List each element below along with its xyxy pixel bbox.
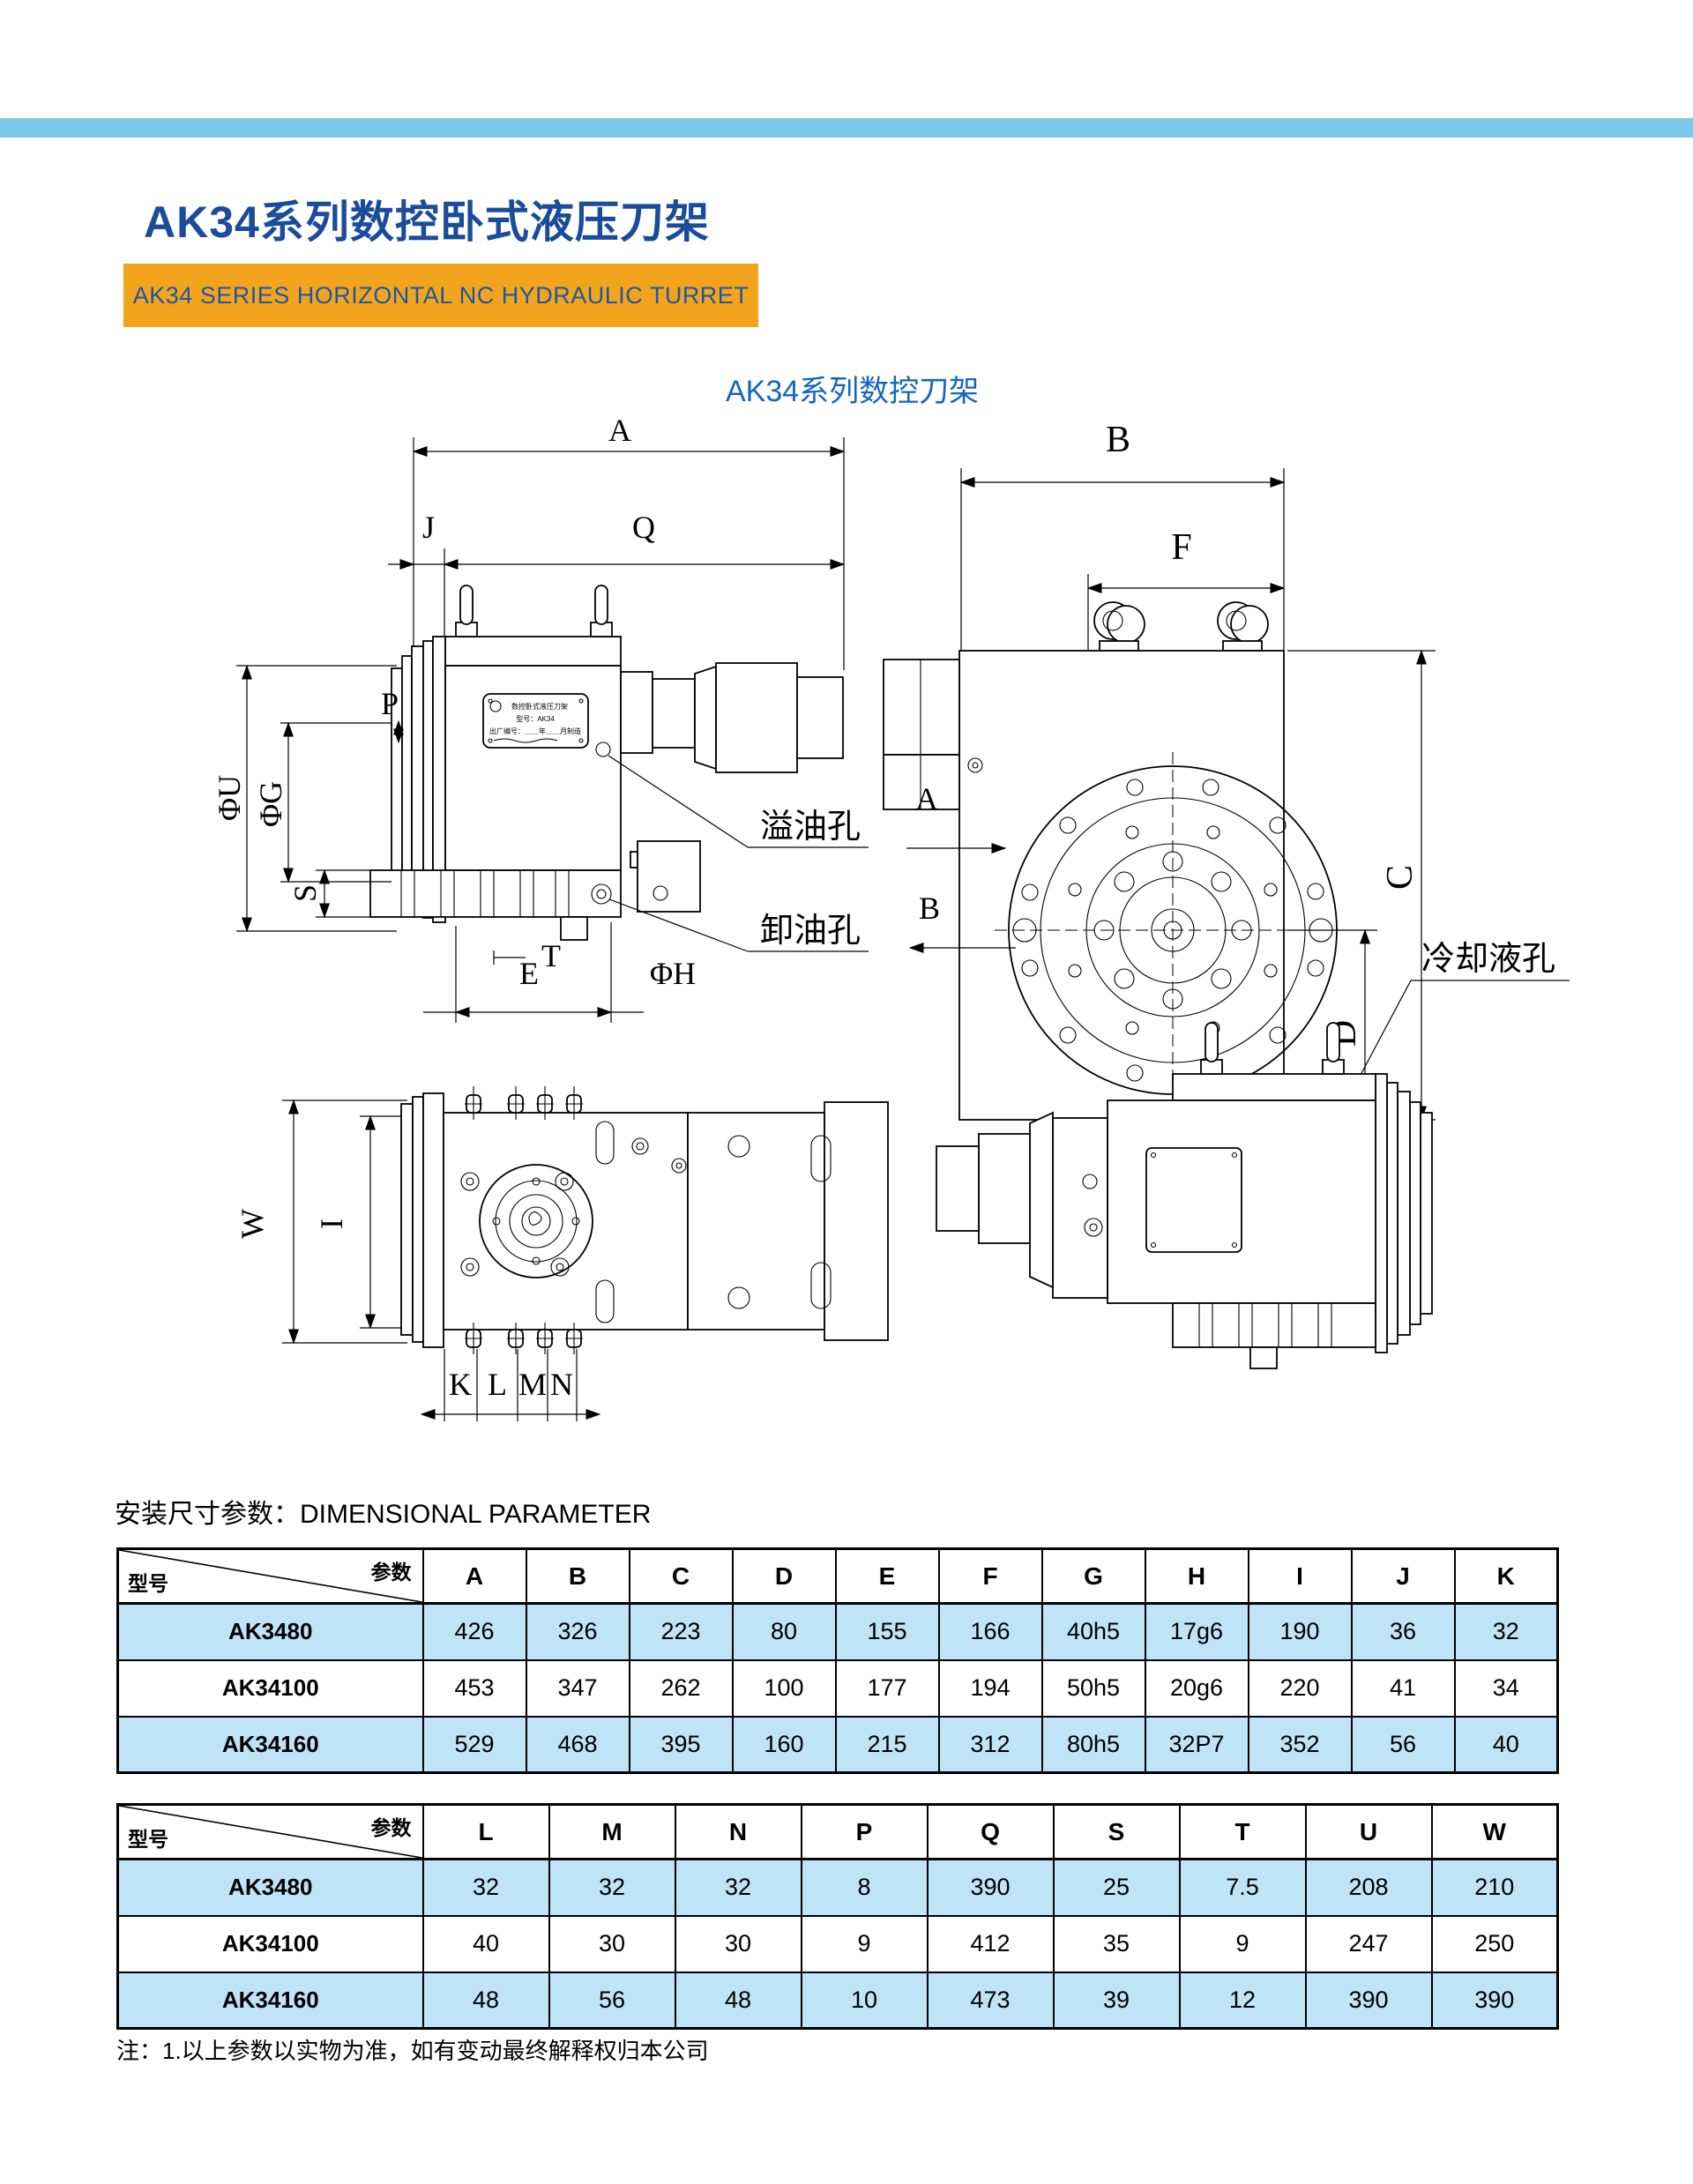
- dim-label-q: Q: [632, 510, 655, 545]
- dim-label-n: N: [550, 1367, 573, 1402]
- dim-label-phi-u: ΦU: [212, 775, 247, 821]
- t1-r1-v8: 190: [1249, 1604, 1352, 1660]
- t1-r1-v5: 166: [939, 1604, 1042, 1660]
- dim-label-m: M: [518, 1367, 547, 1402]
- view-front: B F: [884, 420, 1436, 1120]
- t1-col-j: J: [1352, 1549, 1455, 1604]
- coolant-hole-label: 冷却液孔: [1421, 941, 1555, 978]
- t1-r1-v2: 223: [630, 1604, 733, 1660]
- t1-r3-v1: 468: [526, 1717, 630, 1773]
- t1-r3-v9: 56: [1352, 1717, 1455, 1773]
- t2-r2-v6: 9: [1180, 1916, 1306, 1972]
- t1-r3-v10: 40: [1455, 1717, 1558, 1773]
- dim-label-t: T: [541, 938, 561, 973]
- series-banner-text: AK34 SERIES HORIZONTAL NC HYDRAULIC TURR…: [133, 282, 750, 309]
- t1-col-k: K: [1455, 1549, 1558, 1604]
- t2-col-n: N: [675, 1805, 802, 1860]
- t1-r2-model: AK34100: [118, 1660, 423, 1717]
- t2-r1-v6: 7.5: [1180, 1860, 1306, 1916]
- t2-col-m: M: [549, 1805, 675, 1860]
- t1-r3-v7: 32P7: [1145, 1717, 1249, 1773]
- dim-label-k: K: [449, 1367, 472, 1402]
- nameplate-line3: 出厂编号：＿＿年＿＿月制造: [489, 727, 581, 735]
- t2-r2-v3: 9: [802, 1916, 928, 1972]
- drain-hole-callout: 卸油孔: [592, 884, 869, 951]
- t2-col-u: U: [1306, 1805, 1432, 1860]
- t2-r2-v7: 247: [1306, 1916, 1432, 1972]
- t2-r1-v4: 390: [928, 1860, 1054, 1916]
- table-row: AK3480 426 326 223 80 155 166 40h5 17g6 …: [118, 1604, 1558, 1660]
- t2-r2-model: AK34100: [118, 1916, 423, 1972]
- dim-label-c: C: [1380, 865, 1421, 890]
- table1-header-row: 参数 型号 A B C D E F G H I J K: [118, 1549, 1558, 1604]
- dim-label-i: I: [314, 1219, 349, 1229]
- lifting-eyes: [1094, 602, 1268, 651]
- t1-r3-v0: 529: [423, 1717, 526, 1773]
- footnote: 注：1.以上参数以实物为准，如有变动最终解释权归本公司: [116, 2033, 709, 2066]
- face-block-mid: [688, 1113, 824, 1330]
- t2-col-s: S: [1054, 1805, 1180, 1860]
- overflow-hole-label: 溢油孔: [760, 809, 861, 846]
- t2-r2-v8: 250: [1432, 1916, 1558, 1972]
- corner-model-label: 型号: [128, 1822, 168, 1852]
- t2-r3-v3: 10: [802, 1972, 928, 2029]
- t2-r3-v2: 48: [675, 1972, 802, 2029]
- t1-r1-v10: 32: [1455, 1604, 1558, 1660]
- t2-col-p: P: [802, 1805, 928, 1860]
- table-row: AK34100 453 347 262 100 177 194 50h5 20g…: [118, 1660, 1558, 1717]
- nameplate: 数控卧式液压刀架 型号：AK34 出厂编号：＿＿年＿＿月制造: [483, 694, 588, 748]
- t1-r2-v9: 41: [1352, 1660, 1455, 1717]
- t2-r1-v8: 210: [1432, 1860, 1558, 1916]
- dim-label-a: A: [608, 413, 631, 448]
- left-dimensions: ΦU ΦG S: [212, 666, 397, 931]
- nameplate-line2: 型号：AK34: [516, 715, 555, 723]
- t2-r3-v0: 48: [423, 1972, 549, 2029]
- table-row: AK34160 48 56 48 10 473 39 12 390 390: [118, 1972, 1558, 2029]
- t1-r3-v4: 215: [836, 1717, 939, 1773]
- dimension-table-1: 参数 型号 A B C D E F G H I J K AK3480 426 3…: [116, 1547, 1559, 1774]
- t2-col-l: L: [423, 1805, 549, 1860]
- t1-r2-v5: 194: [939, 1660, 1042, 1717]
- dimension-table-2: 参数 型号 L M N P Q S T U W AK3480 32 32 32 …: [116, 1803, 1559, 2030]
- table-row: AK34160 529 468 395 160 215 312 80h5 32P…: [118, 1717, 1558, 1773]
- section-title-cn: 安装尺寸参数：: [115, 1500, 300, 1529]
- t1-r2-v7: 20g6: [1145, 1660, 1249, 1717]
- dim-label-phi-h: ΦH: [650, 956, 696, 991]
- t1-r1-v1: 326: [526, 1604, 630, 1660]
- section-title-en: DIMENSIONAL PARAMETER: [300, 1500, 651, 1529]
- t2-r1-v7: 208: [1306, 1860, 1432, 1916]
- t1-r2-v2: 262: [630, 1660, 733, 1717]
- face-plates: [401, 1093, 444, 1347]
- t1-r2-v1: 347: [526, 1660, 630, 1717]
- corner-param-label: 参数: [371, 1555, 412, 1585]
- t2-r3-v7: 390: [1306, 1972, 1432, 2029]
- dim-label-p: P: [381, 686, 399, 721]
- t2-r2-v5: 35: [1054, 1916, 1180, 1972]
- dim-label-s: S: [287, 884, 323, 902]
- t1-r2-v3: 100: [733, 1660, 836, 1717]
- t1-col-g: G: [1042, 1549, 1145, 1604]
- t1-r3-v6: 80h5: [1042, 1717, 1145, 1773]
- page-title: AK34系列数控卧式液压刀架: [144, 187, 710, 250]
- t1-r1-v6: 40h5: [1042, 1604, 1145, 1660]
- t2-r1-v0: 32: [423, 1860, 549, 1916]
- t2-r1-v1: 32: [549, 1860, 675, 1916]
- dim-label-phi-g: ΦG: [253, 781, 288, 827]
- t2-col-w: W: [1432, 1805, 1558, 1860]
- t1-r3-v8: 352: [1249, 1717, 1352, 1773]
- t1-col-d: D: [733, 1549, 836, 1604]
- nameplate-line1: 数控卧式液压刀架: [511, 702, 568, 711]
- t2-r2-v4: 412: [928, 1916, 1054, 1972]
- section-title: 安装尺寸参数：DIMENSIONAL PARAMETER: [115, 1492, 651, 1531]
- t2-r2-v1: 30: [549, 1916, 675, 1972]
- t1-col-i: I: [1249, 1549, 1352, 1604]
- t1-r2-v0: 453: [423, 1660, 526, 1717]
- dim-klmn: K L M N: [421, 1349, 600, 1421]
- top-accent-bar: [0, 118, 1693, 138]
- t2-r1-v3: 8: [802, 1860, 928, 1916]
- view-arrow-b-label: B: [919, 891, 940, 926]
- t1-r3-v2: 395: [630, 1717, 733, 1773]
- t1-col-a: A: [423, 1549, 526, 1604]
- turret-body-front: [959, 651, 1284, 1120]
- drain-hole-label: 卸油孔: [760, 913, 861, 950]
- dim-label-j: J: [422, 510, 435, 545]
- t2-r2-v0: 40: [423, 1916, 549, 1972]
- t2-col-q: Q: [928, 1805, 1054, 1860]
- face-block-right: [824, 1102, 888, 1340]
- t2-r1-v5: 25: [1054, 1860, 1180, 1916]
- table1-corner-cell: 参数 型号: [118, 1549, 423, 1604]
- view-arrow-a-label: A: [915, 781, 938, 816]
- t1-r2-v10: 34: [1455, 1660, 1558, 1717]
- t1-r1-v7: 17g6: [1145, 1604, 1249, 1660]
- t1-r2-v8: 220: [1249, 1660, 1352, 1717]
- t2-col-t: T: [1180, 1805, 1306, 1860]
- t1-r3-v5: 312: [939, 1717, 1042, 1773]
- t1-r2-v6: 50h5: [1042, 1660, 1145, 1717]
- t2-r3-v8: 390: [1432, 1972, 1558, 2029]
- t1-r1-model: AK3480: [118, 1604, 423, 1660]
- t1-r1-v4: 155: [836, 1604, 939, 1660]
- flange-stack-right: [1376, 1074, 1432, 1353]
- corner-model-label: 型号: [128, 1567, 168, 1597]
- dim-label-f: F: [1171, 527, 1191, 568]
- t2-r3-v4: 473: [928, 1972, 1054, 2029]
- dim-label-w: W: [235, 1209, 270, 1239]
- t1-r2-v4: 177: [836, 1660, 939, 1717]
- table-row: AK3480 32 32 32 8 390 25 7.5 208 210: [118, 1860, 1558, 1916]
- t1-r1-v3: 80: [733, 1604, 836, 1660]
- dim-label-e: E: [519, 956, 539, 991]
- technical-drawing: A J Q P: [0, 388, 1693, 1472]
- view-side: A J Q P: [212, 413, 869, 1023]
- series-banner: AK34 SERIES HORIZONTAL NC HYDRAULIC TURR…: [123, 264, 758, 327]
- t2-r2-v2: 30: [675, 1916, 802, 1972]
- t1-col-b: B: [526, 1549, 630, 1604]
- table2-corner-cell: 参数 型号: [118, 1805, 423, 1860]
- t1-r3-v3: 160: [733, 1717, 836, 1773]
- t2-r1-v2: 32: [675, 1860, 802, 1916]
- t1-col-c: C: [630, 1549, 733, 1604]
- t2-r3-v5: 39: [1054, 1972, 1180, 2029]
- t2-r3-model: AK34160: [118, 1972, 423, 2029]
- table-row: AK34100 40 30 30 9 412 35 9 247 250: [118, 1916, 1558, 1972]
- t1-r1-v9: 36: [1352, 1604, 1455, 1660]
- t1-r1-v0: 426: [423, 1604, 526, 1660]
- t2-r3-v1: 56: [549, 1972, 675, 2029]
- dim-label-l: L: [488, 1367, 507, 1402]
- table2-header-row: 参数 型号 L M N P Q S T U W: [118, 1805, 1558, 1860]
- t2-r3-v6: 12: [1180, 1972, 1306, 2029]
- t1-r3-model: AK34160: [118, 1717, 423, 1773]
- t1-col-f: F: [939, 1549, 1042, 1604]
- t2-r1-model: AK3480: [118, 1860, 423, 1916]
- dim-label-b: B: [1106, 420, 1130, 460]
- corner-param-label: 参数: [371, 1811, 412, 1841]
- t1-col-h: H: [1145, 1549, 1249, 1604]
- view-face: W I: [235, 1086, 888, 1421]
- t1-col-e: E: [836, 1549, 939, 1604]
